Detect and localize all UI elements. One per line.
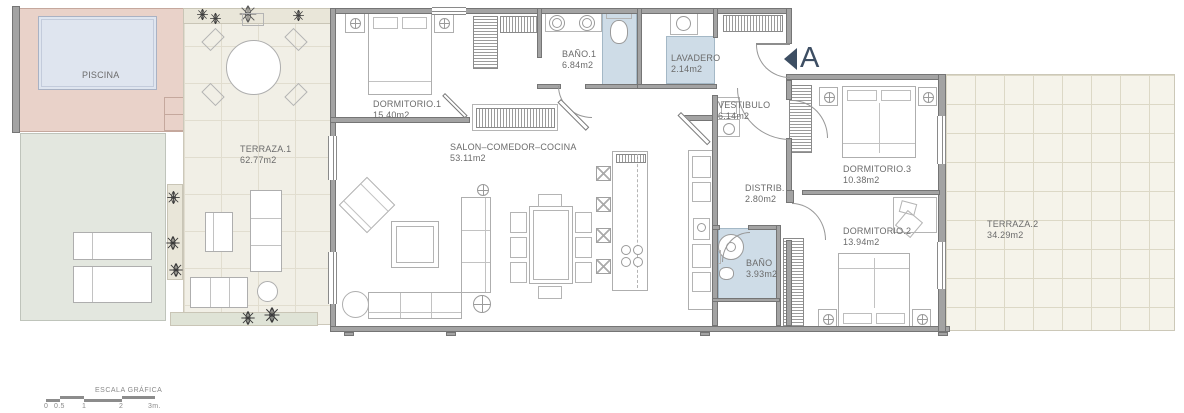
room-name: DORMITORIO.1 (373, 99, 441, 110)
scale-tick: 3m. (148, 403, 161, 410)
plant-icon (209, 12, 222, 25)
coffee-table (391, 221, 439, 268)
detail-line (213, 213, 214, 251)
plant-icon (196, 8, 209, 21)
window (328, 252, 337, 304)
dining-table-inner (533, 210, 569, 280)
wardrobe (473, 16, 498, 69)
cooktop-burner (621, 257, 631, 267)
scale-tick: 2 (119, 403, 123, 410)
sofa (368, 292, 462, 319)
scale-segment (46, 399, 60, 402)
sun-lounger (73, 266, 152, 303)
plant-icon (263, 306, 281, 324)
scale-segment (122, 396, 155, 399)
dining-chair (538, 286, 562, 299)
wall (637, 8, 642, 89)
outdoor-sofa (250, 190, 282, 272)
detail-line (92, 267, 93, 302)
wall (330, 8, 790, 14)
bed-pillow (373, 17, 398, 29)
detail-line (251, 218, 281, 219)
bed-pillow (402, 17, 427, 29)
room-name: BAÑO.1 (562, 49, 596, 60)
plant-icon (292, 9, 305, 22)
room-name: DORMITORIO.3 (843, 164, 911, 175)
appliance-drum (723, 123, 735, 135)
wall (713, 8, 718, 38)
wall (712, 95, 718, 326)
wall (712, 298, 780, 302)
room-area: 2.14m2 (671, 64, 720, 75)
floor-lamp-icon (477, 184, 489, 196)
label-distrib: DISTRIB.2.80m2 (745, 183, 785, 204)
section-marker-a: A (784, 44, 819, 73)
detail-line (400, 293, 401, 318)
plant-icon (240, 310, 256, 326)
toilet (610, 20, 628, 44)
fridge (692, 156, 711, 178)
wardrobe (500, 16, 542, 33)
wall (802, 190, 940, 195)
floor-plan-canvas: PISCINA TERRAZA.162.77m2 DORMITORIO.115.… (0, 0, 1184, 413)
wall (585, 84, 640, 89)
dining-chair (575, 262, 592, 283)
bed (842, 86, 916, 158)
appliance (717, 119, 740, 137)
dining-chair (538, 194, 562, 207)
detail-line (369, 81, 431, 82)
bed-pillow (843, 313, 872, 324)
nightstand (918, 87, 937, 106)
terrace-2-floor (945, 74, 1175, 331)
wall (712, 225, 720, 230)
wall-footing (938, 332, 948, 336)
armchair (339, 177, 396, 234)
wall-footing (344, 332, 354, 336)
terrace-chair (242, 13, 264, 26)
room-area: 6.14m2 (718, 111, 770, 122)
bed-pillow (881, 90, 911, 101)
label-dormitorio-1: DORMITORIO.115.40m2 (373, 99, 441, 120)
toilet (719, 267, 734, 280)
wall (786, 138, 792, 192)
oven (692, 182, 711, 202)
plant-icon (166, 190, 181, 205)
dining-chair (575, 237, 592, 258)
label-piscina: PISCINA (82, 70, 119, 81)
room-area: 34.29m2 (987, 230, 1038, 241)
lamp-icon (439, 18, 450, 29)
sideboard (472, 104, 558, 131)
washer-drum (676, 16, 691, 31)
window (432, 7, 466, 15)
cabinet (692, 272, 711, 292)
wall (786, 190, 794, 203)
cooktop-burner (633, 257, 643, 267)
bar-stool (596, 166, 611, 181)
room-name: BAÑO (746, 258, 777, 269)
scale-segment (60, 396, 84, 399)
floor-lamp-icon (473, 295, 491, 313)
label-lavadero: LAVADERO2.14m2 (671, 53, 720, 74)
wall (330, 326, 950, 332)
detail-line (879, 103, 880, 153)
sink (582, 18, 592, 28)
scale-title: ESCALA GRÁFICA (95, 387, 162, 394)
scale-tick: 0 (44, 403, 48, 410)
detail-line (637, 154, 638, 288)
lamp-icon (917, 314, 928, 325)
room-name: VESTIBULO (718, 100, 770, 111)
wall (786, 74, 946, 80)
sofa (461, 197, 491, 293)
wardrobe (723, 15, 783, 32)
label-terraza-2: TERRAZA.234.29m2 (987, 219, 1038, 240)
bed-pillow (876, 313, 905, 324)
plant-icon (168, 262, 184, 278)
plant-icon (165, 235, 181, 251)
label-salon: SALON–COMEDOR–COCINA53.11m2 (450, 142, 577, 163)
nightstand (345, 13, 365, 33)
cooktop-burner (621, 245, 631, 255)
detail-line (344, 201, 372, 229)
bed (838, 253, 910, 327)
sink (552, 18, 562, 28)
lamp-icon (923, 92, 934, 103)
dining-chair (575, 212, 592, 233)
detail-line (210, 278, 211, 307)
room-name: DORMITORIO.2 (843, 226, 911, 237)
sun-lounger (73, 232, 152, 260)
kitchen-counter (688, 150, 713, 310)
dining-chair (510, 262, 527, 283)
dining-table (529, 206, 573, 284)
wall (786, 8, 792, 44)
label-dormitorio-3: DORMITORIO.310.38m2 (843, 164, 911, 185)
bar-stool (596, 228, 611, 243)
room-area: 6.84m2 (562, 60, 596, 71)
room-area: 13.94m2 (843, 237, 911, 248)
island-drainer (616, 154, 646, 163)
scale-segment (84, 399, 122, 402)
scale-tick: 0.5 (54, 403, 65, 410)
detail-line (369, 312, 461, 313)
section-arrow-icon (784, 48, 797, 70)
room-name: PISCINA (82, 70, 119, 81)
room-area: 10.38m2 (843, 175, 911, 186)
wall (637, 84, 717, 89)
wall-footing (700, 332, 710, 336)
outdoor-chair (205, 212, 233, 252)
detail-line (251, 245, 281, 246)
label-bano-1: BAÑO.16.84m2 (562, 49, 596, 70)
wall (786, 240, 792, 326)
door-leaf (442, 93, 467, 118)
wall (12, 6, 20, 133)
detail-line (229, 278, 230, 307)
bed-pillow (847, 90, 877, 101)
outdoor-side-table (257, 281, 278, 302)
terrace-round-table (226, 40, 281, 95)
door-arc (792, 203, 826, 240)
label-vestibulo: VESTIBULO6.14m2 (718, 100, 770, 121)
label-dormitorio-2: DORMITORIO.213.94m2 (843, 226, 911, 247)
nightstand (434, 13, 454, 33)
room-area: 53.11m2 (450, 153, 577, 164)
window (937, 242, 946, 289)
detail-line (361, 184, 389, 212)
detail-line (874, 258, 875, 308)
scale-tick: 1 (82, 403, 86, 410)
room-name: DISTRIB. (745, 183, 785, 194)
bar-stool (596, 259, 611, 274)
room-name: SALON–COMEDOR–COCINA (450, 142, 577, 153)
room-area: 3.93m2 (746, 269, 777, 280)
detail-line (839, 268, 909, 269)
coffee-table-inner (396, 226, 434, 263)
section-letter: A (800, 44, 819, 73)
wall-footing (446, 332, 456, 336)
room-name: TERRAZA.1 (240, 144, 291, 155)
room-area: 62.77m2 (240, 155, 291, 166)
outdoor-sofa (190, 277, 248, 308)
room-area: 15.40m2 (373, 110, 441, 121)
kitchen-sink-basin (697, 223, 706, 232)
bed (368, 12, 432, 95)
window (328, 136, 337, 180)
dining-chair (510, 212, 527, 233)
label-bano-2: BAÑO3.93m2 (746, 258, 777, 279)
room-name: TERRAZA.2 (987, 219, 1038, 230)
room-name: LAVADERO (671, 53, 720, 64)
lamp-icon (823, 314, 834, 325)
wall (537, 8, 542, 58)
cabinet (692, 244, 711, 268)
wall (938, 74, 946, 332)
detail-line (485, 198, 486, 292)
window (937, 116, 946, 164)
sideboard-hatch (476, 108, 555, 128)
dining-chair (510, 237, 527, 258)
room-area: 2.80m2 (745, 194, 785, 205)
label-terraza-1: TERRAZA.162.77m2 (240, 144, 291, 165)
detail-line (843, 143, 915, 144)
kitchen-island (612, 151, 648, 291)
detail-line (431, 293, 432, 318)
detail-line (92, 233, 93, 259)
side-table (342, 291, 369, 318)
lamp-icon (350, 18, 361, 29)
bar-stool (596, 197, 611, 212)
lamp-icon (824, 92, 835, 103)
nightstand (819, 87, 838, 106)
cooktop-burner (633, 245, 643, 255)
